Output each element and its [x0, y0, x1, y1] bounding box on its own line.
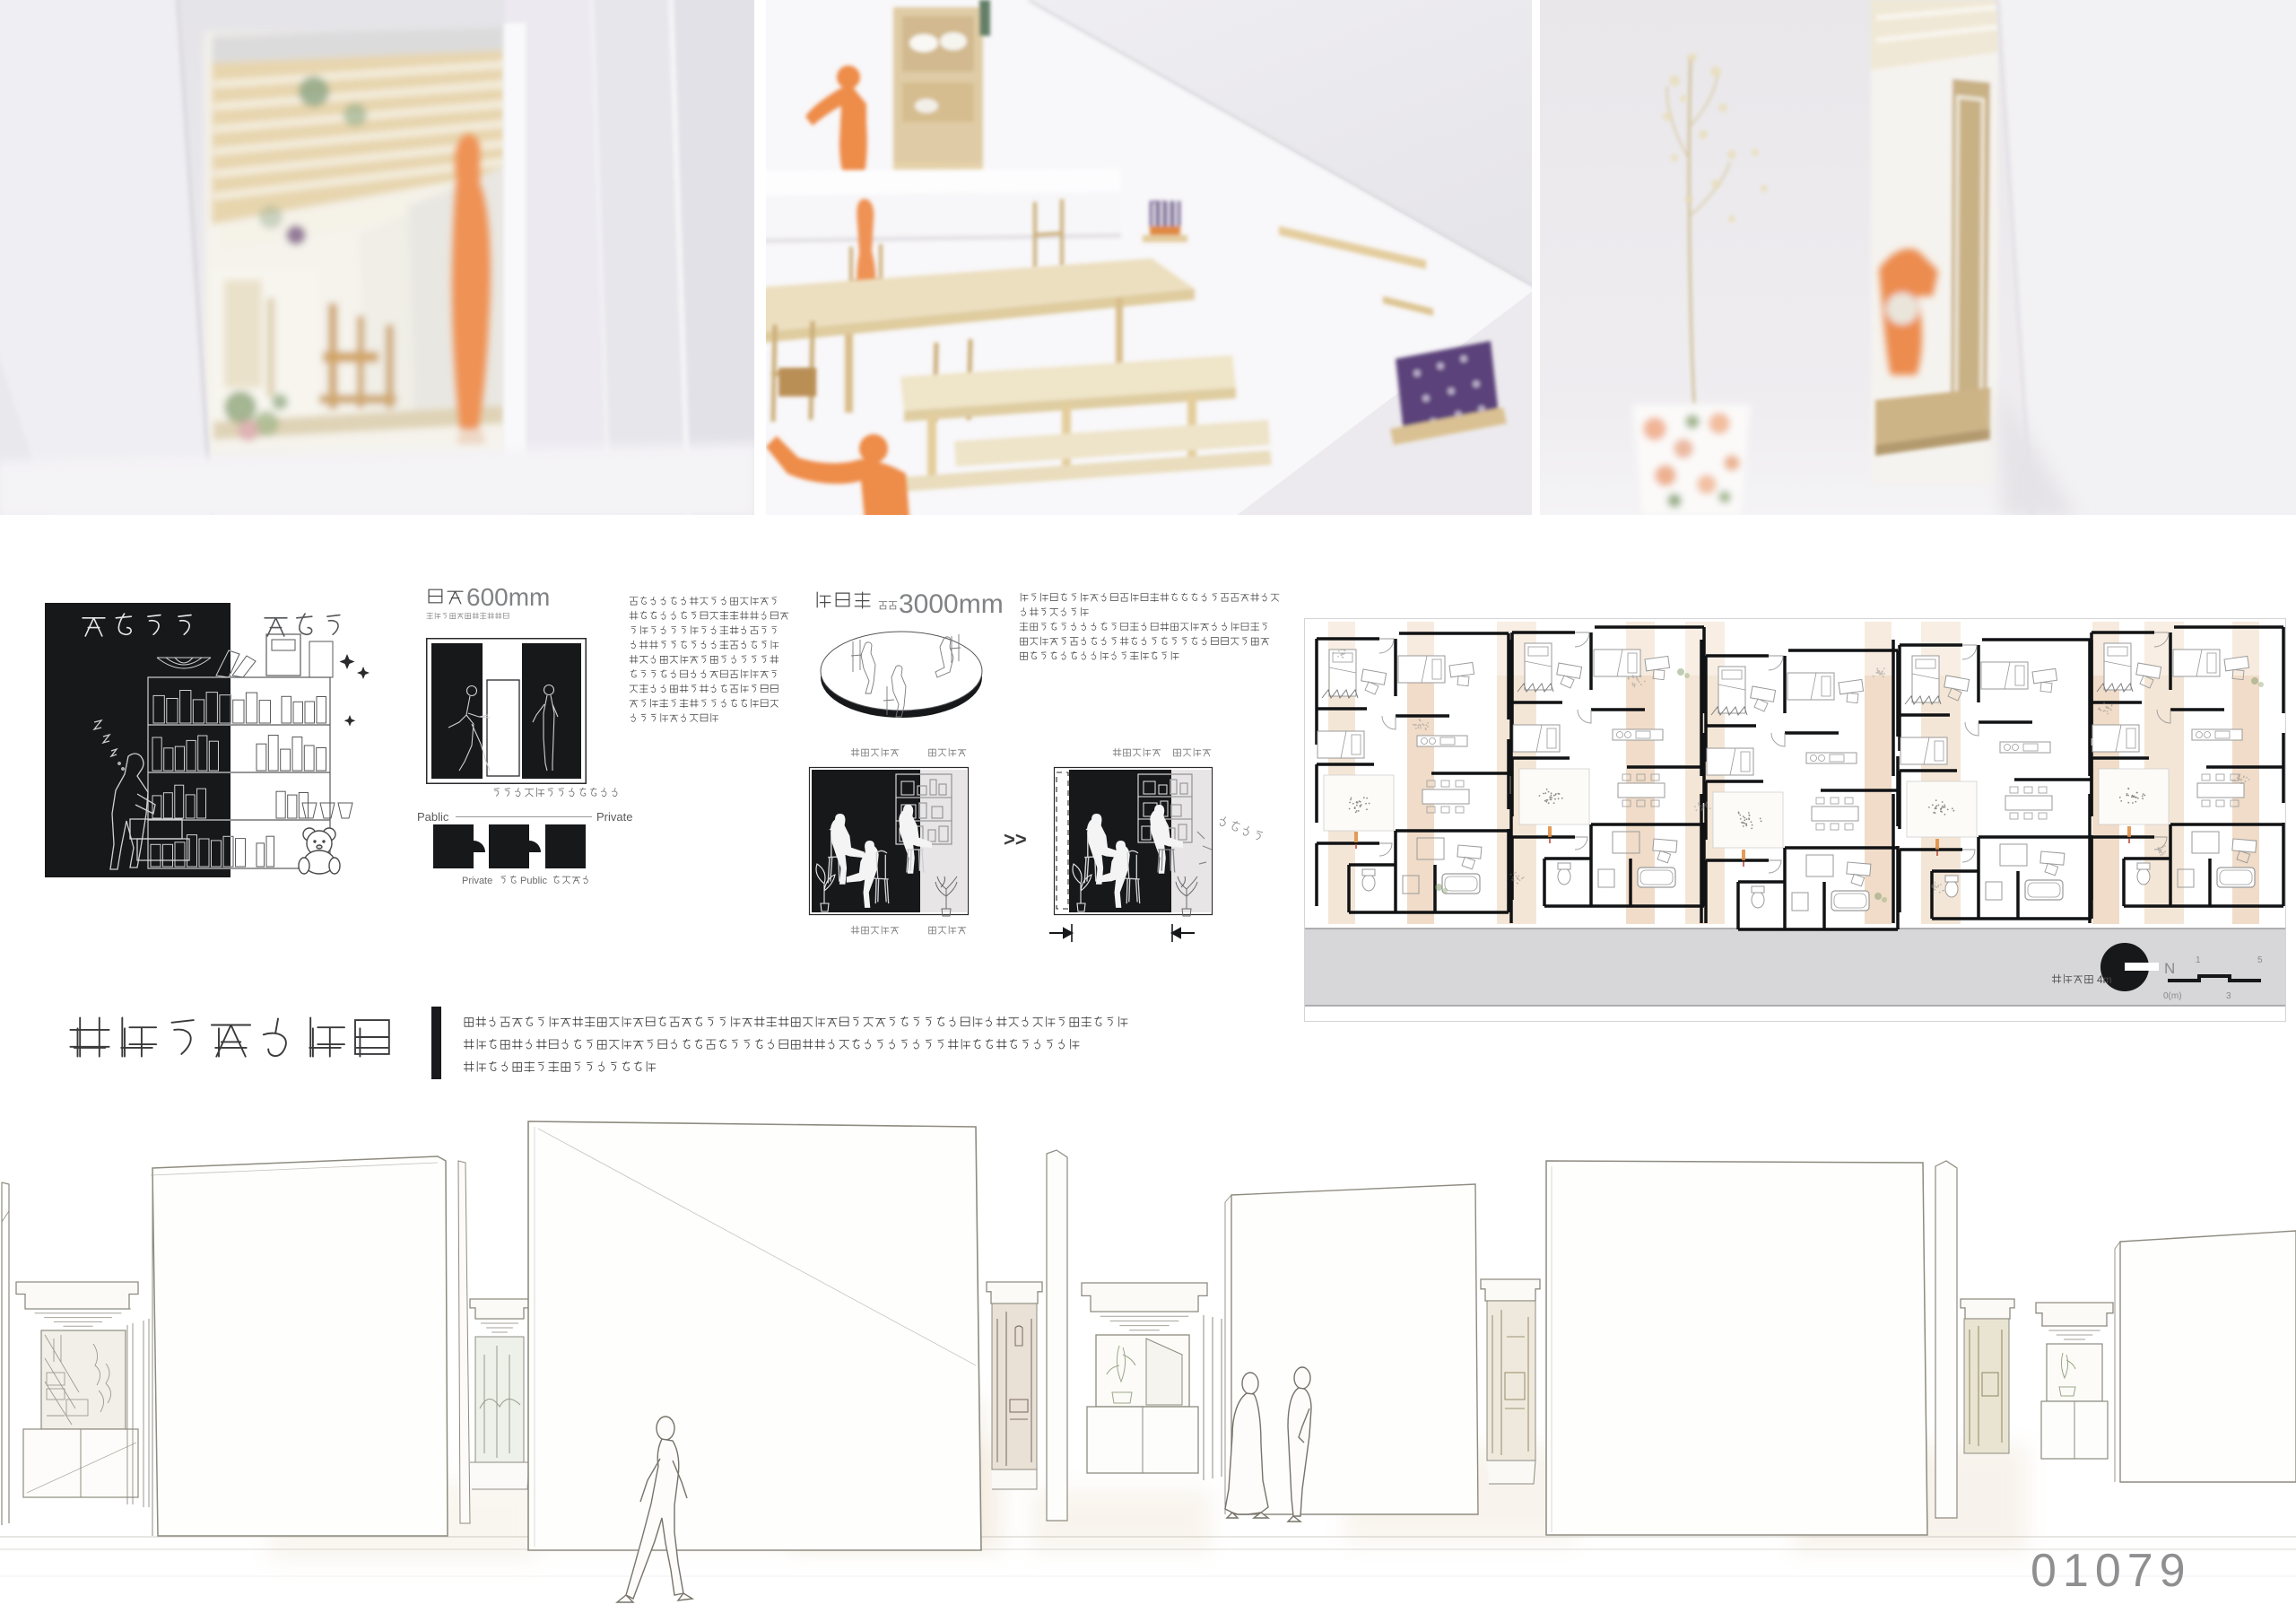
svg-text:01079: 01079: [2031, 1545, 2192, 1597]
svg-text:>>: >>: [1004, 828, 1027, 850]
svg-text:1: 1: [2196, 955, 2201, 965]
svg-text:Pablic: Pablic: [417, 810, 449, 824]
svg-text:Private: Private: [596, 810, 632, 824]
svg-text:0(m): 0(m): [2163, 991, 2182, 1001]
svg-text:Private: Private: [462, 876, 492, 886]
svg-text:5: 5: [2257, 955, 2263, 965]
svg-text:4m: 4m: [2097, 973, 2112, 986]
svg-text:N: N: [2164, 960, 2175, 977]
svg-text:3000mm: 3000mm: [899, 589, 1004, 619]
svg-text:Public: Public: [520, 876, 547, 886]
svg-text:3: 3: [2226, 991, 2231, 1001]
svg-text:600mm: 600mm: [466, 583, 550, 611]
